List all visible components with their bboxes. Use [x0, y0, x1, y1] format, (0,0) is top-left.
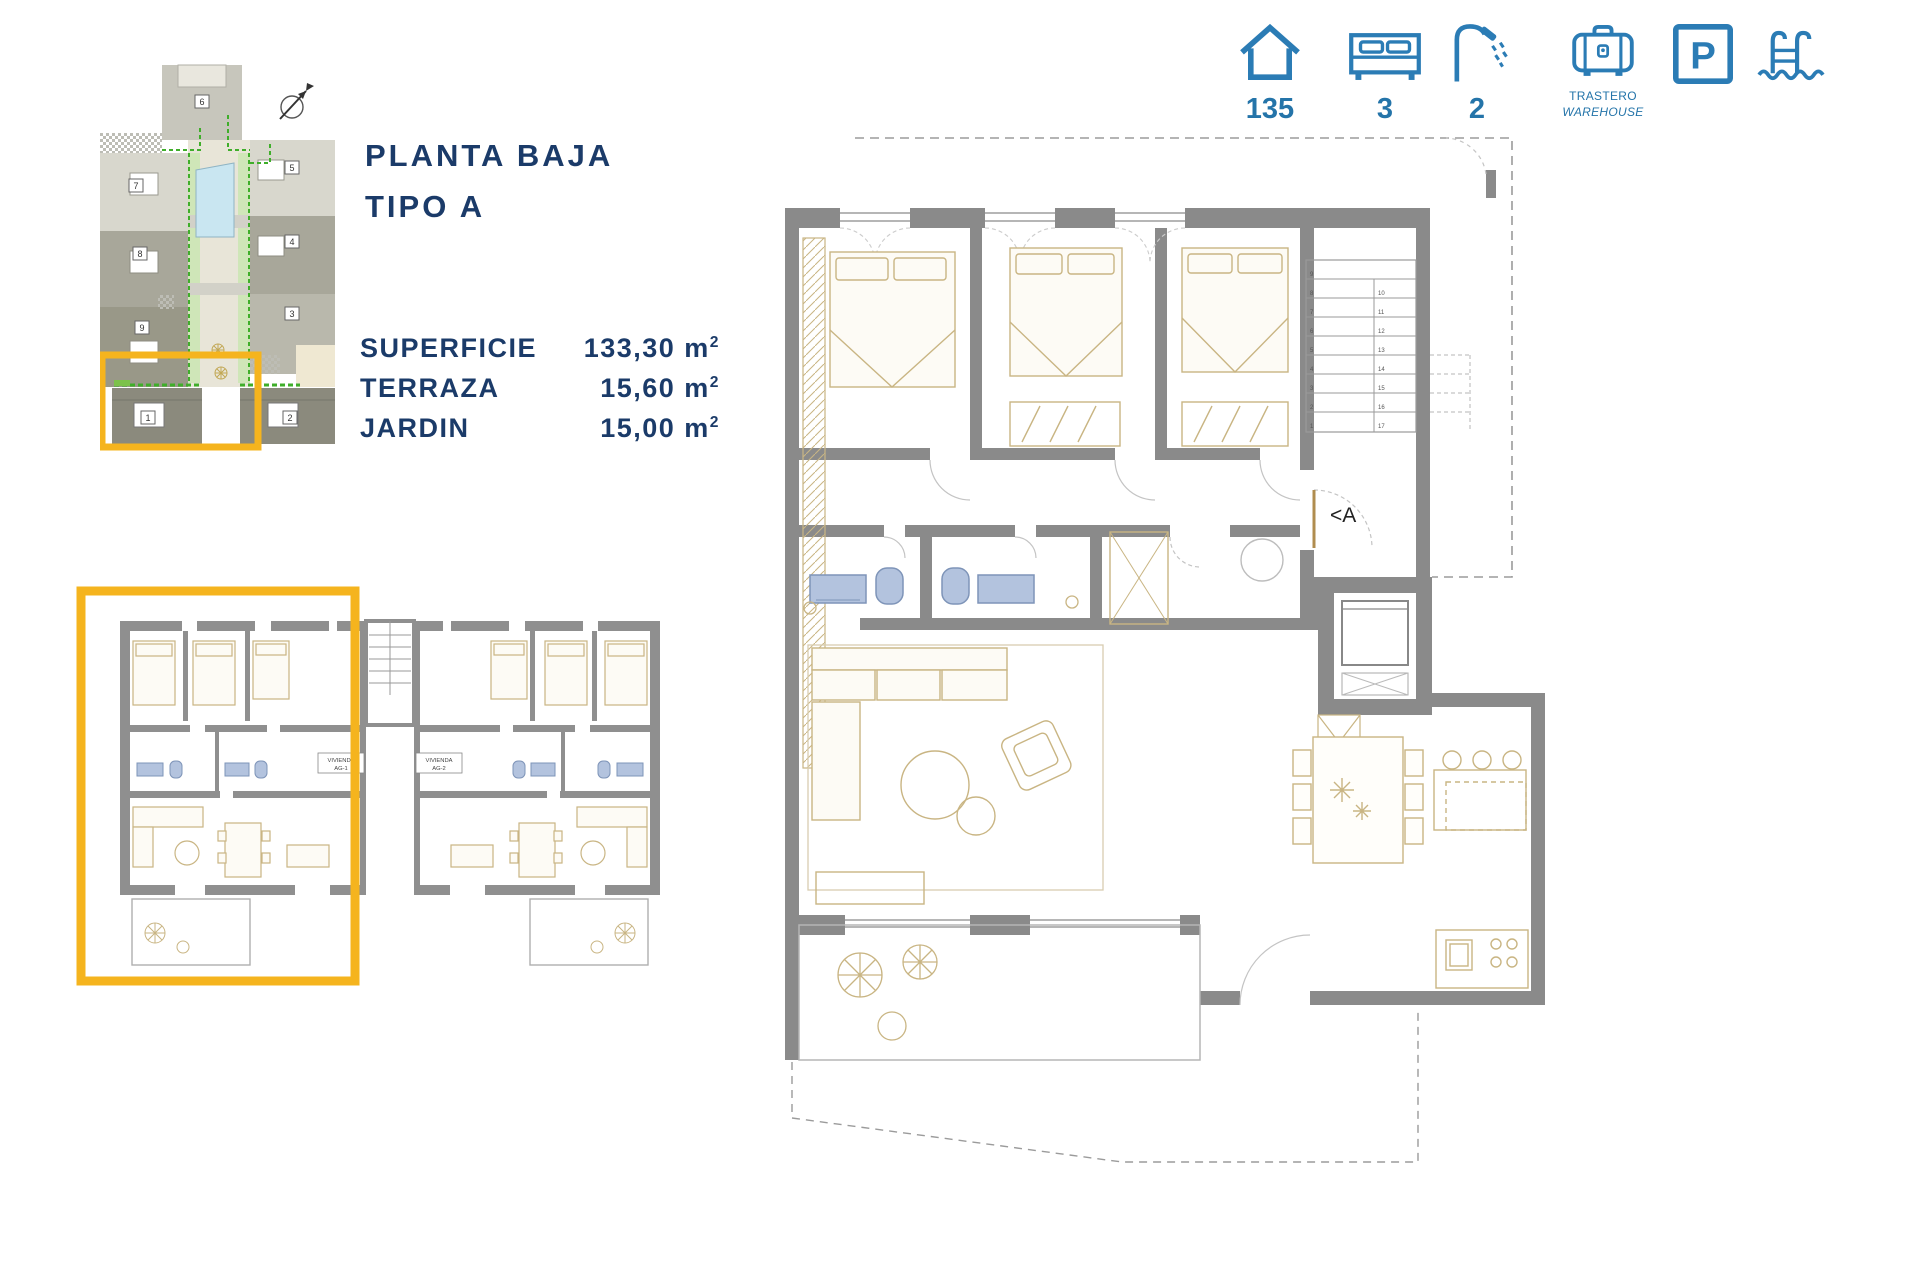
ground-floor-plan: VIVIENDA AG-1 VIVIENDA AG-2 [75, 585, 675, 990]
title-block: PLANTA BAJA TIPO A [365, 138, 613, 225]
site-plan: 6 7 8 9 5 4 3 1 2 [100, 55, 335, 460]
spec-value-number: 15,00 m [600, 413, 710, 443]
spec-value-sup: 2 [710, 414, 720, 431]
amenity-shower: 2 [1412, 18, 1542, 126]
stair-core [366, 621, 414, 725]
spec-value: 15,60 m2 [600, 373, 720, 404]
pool-icon [1756, 26, 1826, 84]
bathroom-fixtures [804, 532, 1283, 624]
spec-value-sup: 2 [710, 334, 720, 351]
staircase: 9 8 7 6 5 4 3 2 1 10 11 12 13 14 15 16 1… [1306, 260, 1470, 432]
page: { "colors": { "navy": "#1b3b69", "icon_b… [0, 0, 1920, 1280]
house-count: 135 [1205, 93, 1335, 126]
spec-row-terraza: TERRAZA 15,60 m2 [360, 373, 720, 404]
kitchen [1434, 751, 1528, 988]
jardin-boundary [792, 1007, 1418, 1162]
block-number-6: 6 [199, 97, 204, 107]
spec-label: JARDIN [360, 413, 470, 444]
boundary-door [1446, 138, 1496, 198]
block-number-3: 3 [289, 309, 294, 319]
shower-count: 2 [1412, 93, 1542, 126]
specs-table: SUPERFICIE 133,30 m2 TERRAZA 15,60 m2 JA… [360, 333, 720, 444]
block-number-1: 1 [145, 413, 150, 423]
house-icon [1237, 22, 1303, 86]
amenity-house: 135 [1205, 22, 1335, 126]
spec-label: SUPERFICIE [360, 333, 537, 364]
warehouse-label: TRASTERO [1538, 89, 1668, 103]
warehouse-label-en: WAREHOUSE [1538, 105, 1668, 119]
main-floor-plan: 9 8 7 6 5 4 3 2 1 10 11 12 13 14 15 16 1… [770, 130, 1560, 1170]
spec-value-number: 15,60 m [600, 373, 710, 403]
amenity-pool [1726, 26, 1856, 89]
spec-value-number: 133,30 m [584, 333, 710, 363]
spec-row-superficie: SUPERFICIE 133,30 m2 [360, 333, 720, 364]
stair-step-number: 13 [1378, 348, 1385, 354]
elevator [1318, 577, 1432, 715]
block-number-8: 8 [137, 249, 142, 259]
unit2-label-line1: VIVIENDA [425, 758, 452, 764]
unit2-label-line2: AG-2 [432, 766, 446, 772]
unit1-label-line2: AG-1 [334, 766, 348, 772]
unit-ag1 [120, 621, 366, 965]
site-pool [196, 163, 234, 237]
spec-value: 133,30 m2 [584, 333, 720, 364]
stair-step-number: 11 [1378, 310, 1385, 316]
stair-step-number: 15 [1378, 386, 1385, 392]
stair-step-number: 16 [1378, 405, 1385, 411]
spec-label: TERRAZA [360, 373, 500, 404]
stair-step-number: 12 [1378, 329, 1385, 335]
dining-set [1293, 737, 1423, 863]
block-number-7: 7 [133, 181, 138, 191]
page-title-line2: TIPO A [365, 189, 613, 225]
unit-labels: VIVIENDA AG-1 VIVIENDA AG-2 [318, 753, 462, 773]
block-number-2: 2 [287, 413, 292, 423]
warehouse-icon [1568, 20, 1638, 82]
block-number-4: 4 [289, 237, 294, 247]
block-number-5: 5 [289, 163, 294, 173]
terrace [792, 925, 1418, 1162]
block-number-9: 9 [139, 323, 144, 333]
stair-step-number: 10 [1378, 291, 1385, 297]
terrace-plants [838, 945, 937, 1040]
entrance: <A [1314, 490, 1372, 548]
compass-icon [280, 83, 314, 119]
page-title-line1: PLANTA BAJA [365, 138, 613, 174]
parking-letter: P [1690, 34, 1716, 77]
spec-value-sup: 2 [710, 374, 720, 391]
living-furniture [812, 648, 1074, 904]
stair-step-number: 17 [1378, 424, 1385, 430]
spec-value: 15,00 m2 [600, 413, 720, 444]
unit-ag2 [414, 621, 660, 965]
entrance-label: <A [1330, 504, 1356, 527]
stair-step-number: 14 [1378, 367, 1385, 373]
spec-row-jardin: JARDIN 15,00 m2 [360, 413, 720, 444]
bedroom-furniture [830, 248, 1288, 446]
shower-icon [1446, 18, 1508, 86]
